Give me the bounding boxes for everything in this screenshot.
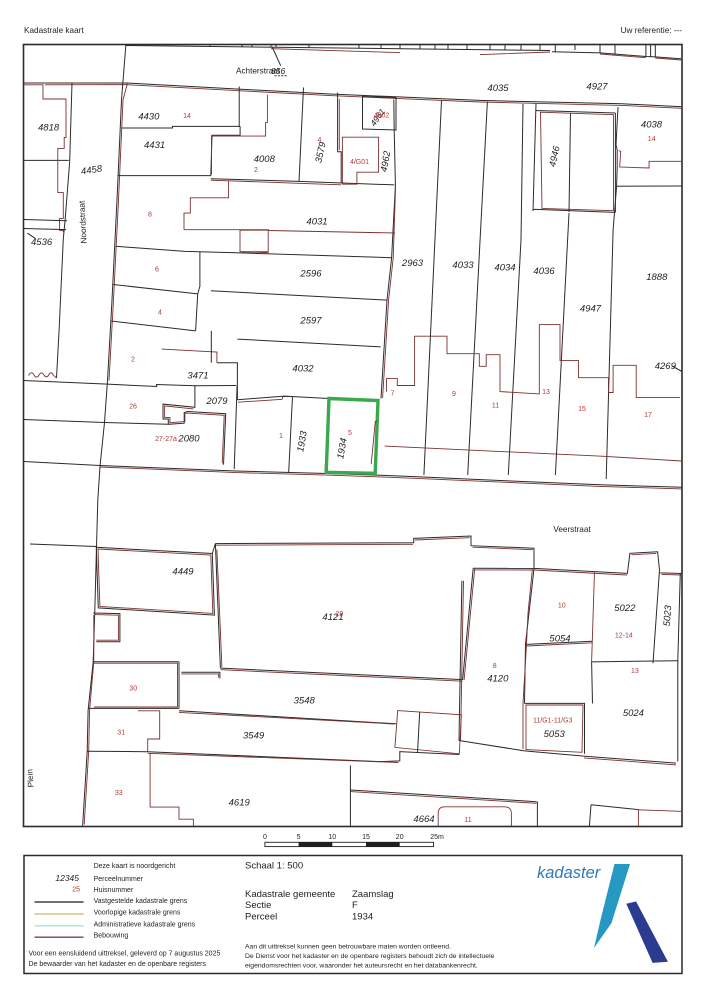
svg-text:4664: 4664 — [413, 814, 434, 825]
svg-text:4038: 4038 — [641, 120, 663, 131]
svg-text:Vastgestelde kadastrale grens: Vastgestelde kadastrale grens — [94, 898, 188, 905]
svg-text:17: 17 — [644, 412, 652, 419]
svg-text:11: 11 — [492, 403, 499, 410]
svg-text:4536: 4536 — [31, 237, 53, 248]
svg-text:Zaamslag: Zaamslag — [352, 889, 394, 900]
svg-text:4: 4 — [158, 310, 162, 317]
svg-text:Voor een eensluidend uittrekse: Voor een eensluidend uittreksel, gelever… — [29, 951, 221, 958]
svg-text:Perceelnummer: Perceelnummer — [94, 876, 144, 883]
svg-text:Kadastrale gemeente: Kadastrale gemeente — [245, 889, 335, 900]
svg-text:5023: 5023 — [662, 604, 674, 627]
svg-text:2: 2 — [254, 167, 258, 174]
svg-text:14: 14 — [648, 136, 656, 143]
svg-text:4031: 4031 — [306, 217, 327, 228]
svg-text:4032: 4032 — [292, 364, 314, 375]
svg-text:4818: 4818 — [38, 123, 60, 134]
svg-text:3549: 3549 — [243, 731, 265, 742]
svg-text:0: 0 — [263, 834, 267, 841]
svg-text:12-14: 12-14 — [615, 632, 633, 639]
svg-text:20: 20 — [396, 834, 404, 841]
svg-text:26: 26 — [129, 404, 137, 411]
svg-text:14: 14 — [183, 113, 191, 120]
svg-text:7: 7 — [391, 391, 395, 398]
svg-text:4619: 4619 — [229, 798, 251, 809]
svg-text:8: 8 — [148, 212, 152, 219]
svg-text:856: 856 — [271, 66, 285, 76]
svg-text:1: 1 — [279, 433, 283, 440]
svg-text:5054: 5054 — [549, 634, 570, 645]
svg-text:2963: 2963 — [401, 258, 424, 269]
svg-text:8: 8 — [493, 663, 497, 670]
svg-text:2597: 2597 — [299, 316, 322, 327]
svg-text:11/G1-11/G3: 11/G1-11/G3 — [533, 718, 573, 725]
svg-text:kadaster: kadaster — [537, 864, 602, 882]
svg-text:3471: 3471 — [187, 371, 208, 382]
svg-text:4033: 4033 — [452, 260, 474, 271]
svg-text:6: 6 — [155, 267, 159, 274]
svg-text:12345: 12345 — [55, 873, 79, 883]
svg-text:30: 30 — [129, 686, 137, 693]
svg-text:4902: 4902 — [374, 113, 390, 120]
svg-text:10: 10 — [328, 834, 336, 841]
svg-text:4035: 4035 — [487, 83, 509, 94]
svg-text:11: 11 — [464, 817, 471, 824]
svg-text:13: 13 — [631, 668, 639, 675]
svg-text:Administratieve kadastrale gre: Administratieve kadastrale grens — [94, 921, 196, 928]
svg-text:Kadastrale kaart: Kadastrale kaart — [24, 26, 84, 35]
svg-text:9: 9 — [452, 391, 456, 398]
svg-text:4120: 4120 — [487, 674, 509, 685]
svg-text:De Dienst voor het kadaster en: De Dienst voor het kadaster en de openba… — [245, 953, 495, 960]
svg-text:29: 29 — [336, 611, 344, 618]
svg-text:4036: 4036 — [533, 266, 555, 277]
svg-text:Huisnummer: Huisnummer — [94, 887, 134, 894]
svg-text:Veerstraat: Veerstraat — [553, 525, 591, 534]
svg-text:Aan dit uittreksel kunnen geen: Aan dit uittreksel kunnen geen betrouwba… — [245, 944, 451, 951]
svg-text:10: 10 — [558, 602, 566, 609]
svg-text:Deze kaart is noordgericht: Deze kaart is noordgericht — [94, 863, 176, 870]
svg-text:33: 33 — [115, 790, 123, 797]
svg-text:2: 2 — [131, 357, 135, 364]
svg-text:1934: 1934 — [352, 912, 373, 923]
svg-text:4/G01: 4/G01 — [350, 159, 369, 166]
svg-text:5022: 5022 — [614, 603, 636, 614]
svg-text:31: 31 — [117, 730, 125, 737]
svg-text:15: 15 — [578, 406, 586, 413]
svg-text:Perceel: Perceel — [245, 912, 277, 923]
svg-text:Schaal 1: 500: Schaal 1: 500 — [245, 861, 303, 872]
svg-text:5053: 5053 — [544, 729, 566, 740]
svg-text:5: 5 — [297, 834, 301, 841]
svg-text:Sectie: Sectie — [245, 900, 271, 911]
svg-text:De bewaarder van het kadaster: De bewaarder van het kadaster en de open… — [29, 961, 207, 968]
svg-text:5: 5 — [348, 430, 352, 437]
svg-text:4430: 4430 — [138, 112, 160, 123]
svg-text:2080: 2080 — [177, 434, 200, 445]
svg-text:3548: 3548 — [294, 696, 316, 707]
svg-text:2079: 2079 — [205, 396, 228, 407]
svg-text:4: 4 — [318, 137, 322, 144]
svg-text:4008: 4008 — [254, 154, 276, 165]
svg-text:4431: 4431 — [144, 140, 165, 151]
svg-text:Plein: Plein — [25, 768, 35, 787]
svg-text:15: 15 — [362, 834, 370, 841]
svg-text:13: 13 — [542, 389, 550, 396]
svg-text:Voorlopige kadastrale grens: Voorlopige kadastrale grens — [94, 910, 181, 917]
svg-text:4927: 4927 — [586, 82, 608, 93]
svg-text:27-27a: 27-27a — [155, 436, 177, 443]
svg-text:Uw referentie: ---: Uw referentie: --- — [621, 26, 683, 35]
svg-text:4947: 4947 — [580, 304, 602, 315]
svg-text:5024: 5024 — [623, 708, 644, 719]
svg-text:4034: 4034 — [494, 263, 515, 274]
svg-text:Bebouwing: Bebouwing — [94, 933, 129, 940]
svg-text:F: F — [352, 900, 358, 911]
svg-text:4449: 4449 — [172, 567, 194, 578]
svg-text:2596: 2596 — [299, 269, 322, 280]
svg-text:25m: 25m — [430, 834, 444, 841]
svg-text:1888: 1888 — [646, 272, 668, 283]
svg-text:25: 25 — [72, 886, 80, 893]
svg-text:eigendomsrechten voor, waarond: eigendomsrechten voor, waaronder het aut… — [245, 963, 478, 970]
